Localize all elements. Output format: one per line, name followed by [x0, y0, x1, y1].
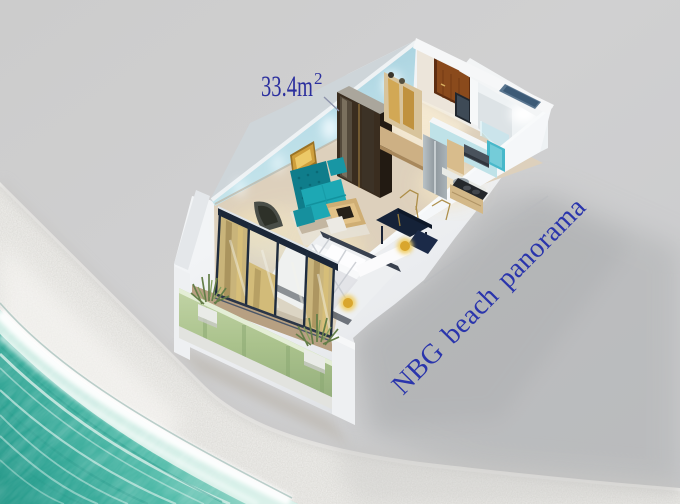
svg-text:2: 2: [314, 69, 323, 88]
svg-text:33.4m: 33.4m: [261, 70, 313, 103]
